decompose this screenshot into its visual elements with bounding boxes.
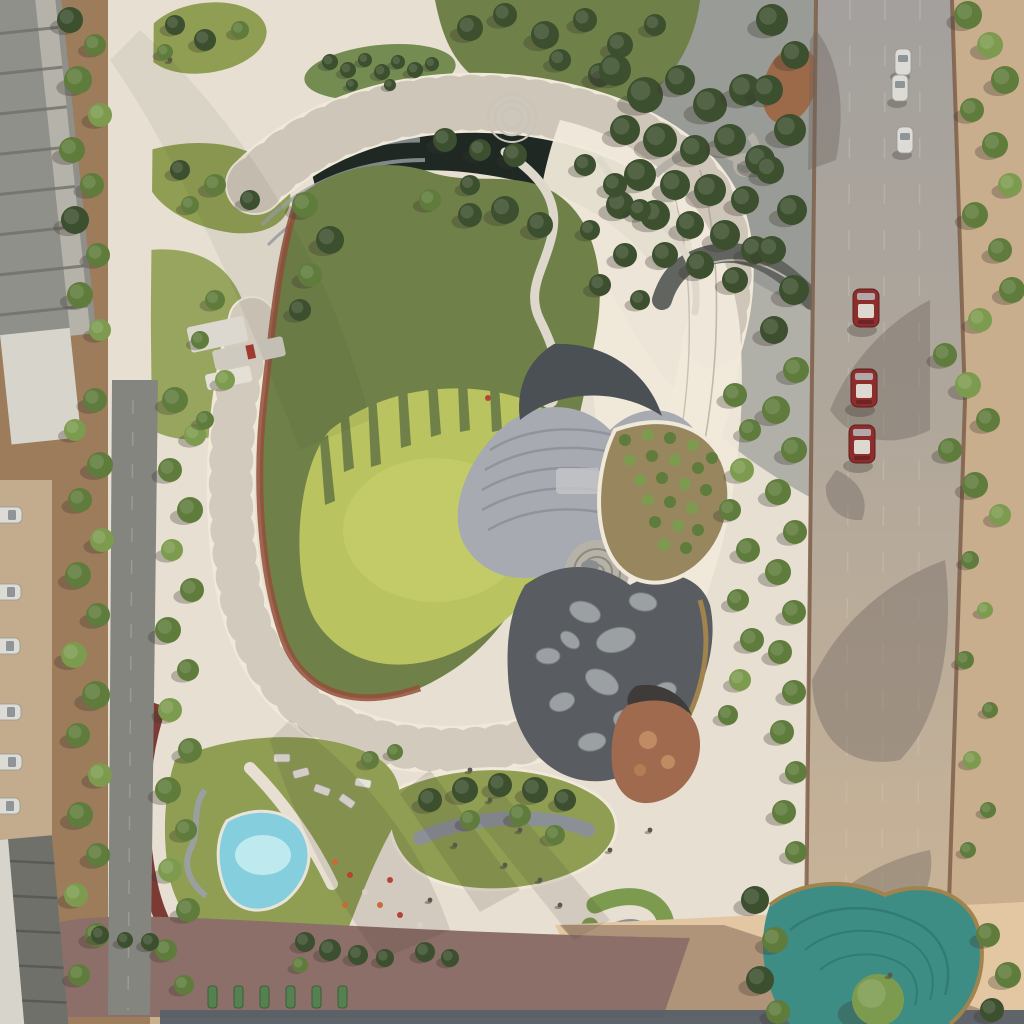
tree-highlight: [765, 930, 779, 944]
amphitheater-stage: [556, 468, 600, 494]
car-glass: [7, 587, 15, 597]
tree-highlight: [462, 812, 473, 823]
tree-highlight: [958, 375, 972, 389]
tree-highlight: [655, 245, 669, 259]
tree-highlight: [631, 81, 651, 101]
car-glass: [6, 801, 14, 811]
orchard-tree: [634, 474, 646, 486]
tree-highlight: [576, 156, 588, 168]
flower-speck: [332, 859, 338, 865]
parked-white-car: [0, 507, 22, 523]
tree-highlight: [738, 540, 751, 553]
tree-highlight: [91, 321, 103, 333]
orchard-tree: [672, 520, 684, 532]
orchard-tree: [680, 542, 692, 554]
tree-highlight: [86, 36, 98, 48]
tree-highlight: [615, 245, 628, 258]
tree-highlight: [990, 240, 1003, 253]
parking-dash: [338, 986, 347, 1008]
tree-highlight: [342, 64, 351, 73]
tree-highlight: [979, 604, 988, 613]
tree-highlight: [759, 7, 777, 25]
tree-highlight: [998, 965, 1012, 979]
parking-dash: [286, 986, 295, 1008]
tree-highlight: [663, 173, 680, 190]
orchard-tree: [669, 454, 681, 466]
car-glass: [898, 55, 908, 62]
tree-highlight: [756, 78, 773, 95]
tree-highlight: [319, 229, 334, 244]
tree-highlight: [784, 440, 798, 454]
car-rear: [854, 456, 870, 460]
tree-highlight: [940, 440, 953, 453]
tree-highlight: [182, 580, 195, 593]
tree-highlight: [462, 177, 473, 188]
tree-highlight: [158, 780, 172, 794]
tree-highlight: [768, 562, 782, 576]
tree-highlight: [324, 56, 333, 65]
orchard-tree: [646, 450, 658, 462]
tree-highlight: [591, 276, 603, 288]
tree-highlight: [180, 740, 193, 753]
tree-highlight: [768, 1002, 781, 1015]
tree-highlight: [613, 118, 630, 135]
tree-highlight: [193, 333, 203, 343]
parking-dash: [208, 986, 217, 1008]
tree-highlight: [784, 602, 797, 615]
tree-highlight: [70, 805, 84, 819]
tree-highlight: [774, 802, 787, 815]
tree-highlight: [770, 642, 783, 655]
parked-white-car: [0, 584, 21, 600]
playground-circle: [634, 764, 646, 776]
flower-speck: [347, 872, 353, 878]
tree-highlight: [511, 806, 523, 818]
parked-white-car: [0, 638, 20, 654]
aerial-park-render: [0, 0, 1024, 1024]
tree-highlight: [530, 215, 544, 229]
tree-highlight: [982, 804, 991, 813]
parking-dash: [234, 986, 243, 1008]
tree-highlight: [713, 223, 730, 240]
flower-speck: [387, 877, 393, 883]
tree-highlight: [759, 159, 774, 174]
tree-highlight: [785, 522, 798, 535]
tree-highlight: [720, 707, 731, 718]
flower-speck: [377, 902, 383, 908]
car-rear: [856, 400, 872, 404]
tree-highlight: [787, 763, 799, 775]
tree-highlight: [965, 475, 979, 489]
orchard-tree: [664, 432, 676, 444]
tree-highlight: [978, 925, 991, 938]
tree-highlight: [683, 138, 700, 155]
tree-highlight: [66, 885, 79, 898]
tree-highlight: [575, 10, 588, 23]
car-glass: [6, 641, 14, 651]
orchard-tree: [664, 496, 676, 508]
tree-highlight: [980, 35, 994, 49]
tree-highlight: [958, 653, 968, 663]
tree-highlight: [68, 725, 81, 738]
flower-speck: [417, 922, 423, 928]
person: [453, 843, 458, 848]
tree-highlight: [494, 199, 509, 214]
tree-highlight: [689, 254, 704, 269]
person: [558, 903, 563, 908]
tree-highlight: [857, 979, 886, 1008]
person: [488, 798, 493, 803]
tree-highlight: [90, 765, 103, 778]
tree-highlight: [70, 966, 82, 978]
tree-highlight: [160, 860, 173, 873]
orchard-tree: [700, 484, 712, 496]
tree-highlight: [525, 780, 539, 794]
tree-highlight: [646, 16, 658, 28]
tree-highlight: [90, 105, 103, 118]
tree-highlight: [421, 191, 433, 203]
tree-highlight: [551, 51, 563, 63]
tree-highlight: [780, 198, 797, 215]
tree-highlight: [732, 77, 750, 95]
person: [168, 58, 173, 63]
tree-highlight: [782, 278, 799, 295]
tree-highlight: [982, 1000, 995, 1013]
tree-highlight: [679, 214, 694, 229]
tree-highlight: [167, 17, 178, 28]
tree-highlight: [300, 265, 313, 278]
tree-highlight: [88, 245, 101, 258]
tree-highlight: [66, 421, 78, 433]
tree-highlight: [717, 127, 735, 145]
person: [428, 898, 433, 903]
tree-highlight: [160, 700, 173, 713]
tree-highlight: [994, 69, 1009, 84]
tree-highlight: [784, 44, 799, 59]
tree-highlight: [646, 126, 665, 145]
tree-highlight: [158, 620, 172, 634]
tree-highlight: [772, 722, 785, 735]
tree-highlight: [179, 661, 191, 673]
tree-highlight: [965, 753, 975, 763]
tree-highlight: [178, 900, 191, 913]
parked-white-car: [0, 798, 20, 814]
orchard-tree: [649, 516, 661, 528]
tree-highlight: [378, 951, 388, 961]
tree-highlight: [420, 790, 433, 803]
car-glass: [900, 133, 910, 140]
pool-shallow: [235, 835, 291, 875]
tree-highlight: [172, 162, 183, 173]
tree-highlight: [721, 501, 733, 513]
tree-highlight: [957, 4, 972, 19]
person: [888, 973, 893, 978]
orchard-tree: [619, 434, 631, 446]
orchard-tree: [658, 539, 670, 551]
tree-highlight: [784, 682, 797, 695]
person: [608, 848, 613, 853]
orchard-tree: [692, 462, 704, 474]
tree-highlight: [632, 292, 643, 303]
flower-speck: [397, 912, 403, 918]
tree-highlight: [495, 5, 508, 18]
tree-highlight: [177, 821, 189, 833]
car-glass: [8, 510, 16, 520]
orchard-tree: [686, 502, 698, 514]
tree-highlight: [60, 10, 74, 24]
tree-highlight: [582, 222, 593, 233]
tree-highlight: [765, 399, 780, 414]
tree-highlight: [207, 292, 218, 303]
flower-speck: [342, 902, 348, 908]
tree-highlight: [741, 421, 753, 433]
tree-highlight: [435, 130, 448, 143]
tree-highlight: [505, 145, 518, 158]
tree-highlight: [962, 844, 971, 853]
car-roof: [858, 304, 874, 318]
tree-highlight: [725, 270, 739, 284]
tree-highlight: [93, 928, 103, 938]
tree-highlight: [176, 977, 187, 988]
car-glass: [8, 757, 16, 767]
tree-highlight: [962, 100, 975, 113]
orchard-tree: [679, 478, 691, 490]
tree-highlight: [627, 162, 645, 180]
tree-highlight: [359, 54, 367, 62]
tree-highlight: [455, 780, 469, 794]
tree-highlight: [1002, 280, 1016, 294]
tree-highlight: [163, 541, 175, 553]
tree-highlight: [761, 239, 776, 254]
tree-highlight: [347, 80, 354, 87]
tree-highlight: [62, 140, 76, 154]
tree-highlight: [610, 35, 624, 49]
tree-highlight: [242, 192, 253, 203]
person: [468, 768, 473, 773]
tree-highlight: [409, 64, 418, 73]
tree-highlight: [376, 66, 385, 75]
tree-highlight: [85, 390, 98, 403]
tree-highlight: [206, 176, 218, 188]
tree-highlight: [196, 31, 208, 43]
orchard-tree: [687, 439, 699, 451]
tree-highlight: [984, 704, 993, 713]
tree-highlight: [985, 135, 999, 149]
tree-highlight: [460, 18, 474, 32]
tree-highlight: [729, 591, 741, 603]
tree-highlight: [668, 68, 685, 85]
parking-dash: [312, 986, 321, 1008]
boulder: [536, 648, 560, 664]
tree-highlight: [119, 934, 128, 943]
tree-highlight: [725, 385, 738, 398]
tree-highlight: [490, 775, 503, 788]
tree-highlight: [165, 390, 179, 404]
orchard-tree: [642, 429, 654, 441]
tree-highlight: [233, 23, 243, 33]
tree-highlight: [198, 413, 208, 423]
car-roof: [856, 384, 872, 398]
tree-highlight: [321, 941, 333, 953]
tree-highlight: [417, 944, 428, 955]
tree-highlight: [787, 843, 799, 855]
tree-highlight: [749, 969, 764, 984]
tree-highlight: [965, 205, 979, 219]
person: [648, 828, 653, 833]
tree-highlight: [556, 791, 568, 803]
tree-highlight: [1000, 175, 1013, 188]
tree-highlight: [159, 46, 168, 55]
tree-highlight: [389, 746, 398, 755]
tree-highlight: [697, 177, 715, 195]
tree-highlight: [70, 285, 84, 299]
tree-highlight: [82, 175, 95, 188]
tree-highlight: [978, 410, 991, 423]
orchard-tree: [642, 494, 654, 506]
tree-highlight: [963, 553, 973, 563]
person: [518, 828, 523, 833]
tree-highlight: [90, 455, 104, 469]
tree-highlight: [443, 951, 453, 961]
tree-highlight: [696, 91, 715, 110]
tree-highlight: [143, 935, 153, 945]
car-roof: [854, 440, 870, 454]
tree-highlight: [605, 175, 618, 188]
tree-highlight: [85, 684, 100, 699]
tree-highlight: [64, 209, 79, 224]
flower-speck: [485, 395, 491, 401]
tree-highlight: [763, 319, 778, 334]
tree-highlight: [547, 827, 558, 838]
car-glass: [895, 81, 905, 88]
tree-highlight: [291, 301, 303, 313]
playground-circle: [639, 731, 657, 749]
tree-highlight: [180, 500, 194, 514]
right-road-zone: [806, 0, 965, 1004]
tree-highlight: [160, 460, 173, 473]
tree-highlight: [67, 69, 82, 84]
tree-highlight: [731, 671, 743, 683]
tree-highlight: [363, 753, 373, 763]
car-windshield: [855, 373, 873, 380]
tree-highlight: [297, 934, 308, 945]
tree-highlight: [744, 889, 759, 904]
tree-highlight: [88, 605, 101, 618]
tree-highlight: [471, 141, 483, 153]
playground-circle: [661, 755, 675, 769]
tree-highlight: [734, 189, 749, 204]
tree-highlight: [88, 845, 101, 858]
tree-highlight: [392, 56, 400, 64]
tree-highlight: [92, 530, 105, 543]
car-rear: [858, 320, 874, 324]
tree-highlight: [385, 80, 392, 87]
parking-dash: [260, 986, 269, 1008]
tree-highlight: [460, 205, 473, 218]
tree-highlight: [157, 941, 169, 953]
left-sidewalk: [0, 480, 52, 840]
tree-highlight: [426, 58, 434, 66]
tree-highlight: [742, 630, 755, 643]
person: [538, 878, 543, 883]
tree-highlight: [602, 57, 620, 75]
tree-highlight: [70, 490, 83, 503]
tree-highlight: [991, 506, 1003, 518]
tree-highlight: [935, 345, 948, 358]
tree-highlight: [68, 565, 82, 579]
tree-highlight: [217, 372, 228, 383]
tree-highlight: [631, 201, 643, 213]
car-windshield: [853, 429, 871, 436]
person: [503, 863, 508, 868]
flower-speck: [362, 889, 368, 895]
parked-white-car: [0, 704, 21, 720]
orchard-tree: [692, 524, 704, 536]
car-glass: [7, 707, 15, 717]
parked-white-car: [0, 754, 22, 770]
tree-highlight: [534, 24, 549, 39]
tree-highlight: [970, 310, 983, 323]
tree-highlight: [777, 117, 795, 135]
tree-highlight: [786, 360, 800, 374]
tree-highlight: [183, 198, 193, 208]
orchard-tree: [706, 452, 718, 464]
tree-highlight: [295, 195, 309, 209]
car-windshield: [857, 293, 875, 300]
tree-highlight: [64, 645, 78, 659]
tree-highlight: [768, 482, 782, 496]
orchard-tree: [656, 472, 668, 484]
aerial-park-photo: [0, 0, 1024, 1024]
tree-highlight: [294, 959, 303, 968]
tree-highlight: [350, 947, 361, 958]
tree-highlight: [732, 460, 745, 473]
orchard-tree: [624, 454, 636, 466]
